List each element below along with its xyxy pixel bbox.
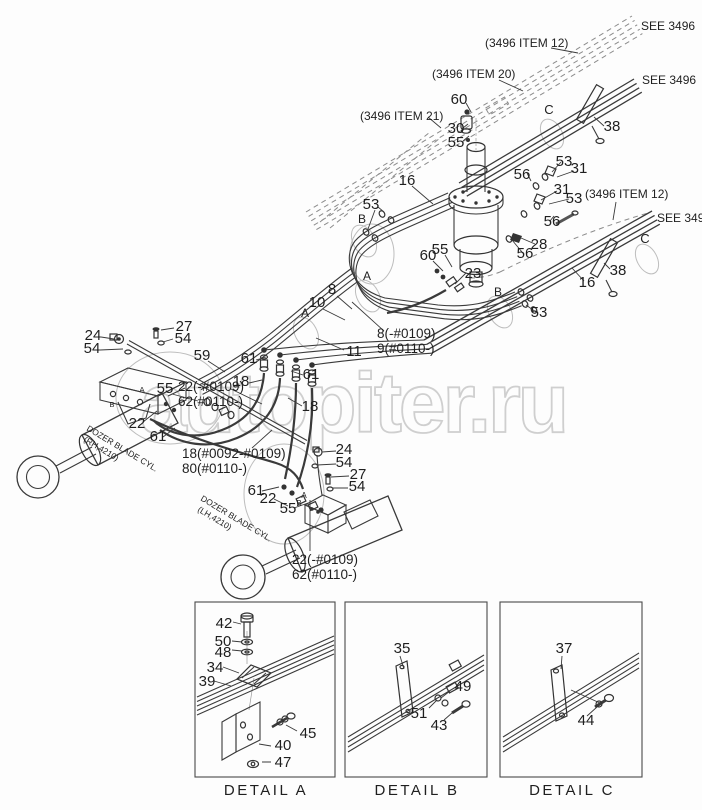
part-label-flow-b-1: B [358, 212, 366, 226]
part-label-60-top: 60 [451, 91, 468, 108]
part-label-22-variant-left: 22(-#0109) [178, 379, 244, 394]
part-label-61-b: 61 [150, 428, 167, 445]
part-label-flow-c-2: C [640, 231, 649, 246]
part-label-38-top: 38 [604, 118, 621, 135]
part-label-38-mid: 38 [610, 262, 627, 279]
part-label-56-a: 56 [514, 166, 531, 183]
part-label-detail-b-caption: DETAIL B [374, 782, 459, 799]
part-label-28: 28 [531, 236, 548, 253]
detail-boxes [195, 602, 642, 777]
part-label-ref-3496-item12-top: (3496 ITEM 12) [485, 36, 568, 50]
part-label-port-a-bot: A [301, 491, 307, 500]
part-label-port-a-block: A [139, 385, 144, 394]
part-label-16-left: 16 [399, 172, 416, 189]
part-label-flow-c-1: C [544, 102, 553, 117]
part-label-18-variant: 18(#0092-#0109) [182, 446, 286, 461]
detail-c-box [500, 602, 642, 777]
part-label-35: 35 [394, 640, 411, 657]
part-label-61-c: 61 [303, 366, 320, 383]
part-label-23: 23 [465, 265, 482, 282]
part-label-9-variant: 9(#0110-) [377, 341, 435, 356]
part-label-see-3496-2: SEE 3496 [642, 73, 696, 87]
part-label-22-left: 22 [129, 415, 146, 432]
part-label-flow-b-2: B [494, 285, 502, 299]
parts-diagram-page: autopiter.ru [0, 0, 702, 810]
part-label-8: 8 [328, 281, 336, 298]
part-label-11: 11 [346, 343, 362, 360]
piping-diagram-canvas: autopiter.ru [0, 0, 702, 810]
part-label-port-b-bot: B [296, 499, 301, 508]
part-label-ref-3496-item20: (3496 ITEM 20) [432, 67, 515, 81]
part-label-54-left-2: 54 [175, 330, 192, 347]
part-label-ref-3496-item12-mid: (3496 ITEM 12) [585, 187, 668, 201]
part-label-45: 45 [300, 725, 317, 742]
part-label-22-bot: 22 [260, 490, 277, 507]
detail-b-art [348, 655, 484, 752]
part-label-53-b: 53 [566, 190, 583, 207]
part-label-ref-3496-item21: (3496 ITEM 21) [360, 109, 443, 123]
part-label-53-c: 53 [531, 304, 548, 321]
part-label-detail-a-caption: DETAIL A [224, 782, 308, 799]
part-label-62-variant-left: 62(#0110-) [178, 394, 243, 409]
part-label-31-a: 31 [571, 160, 588, 177]
part-label-40: 40 [275, 737, 292, 754]
part-label-detail-c-caption: DETAIL C [529, 782, 615, 799]
detail-c-art [503, 653, 639, 752]
part-label-42: 42 [216, 615, 233, 632]
part-label-44: 44 [578, 712, 595, 729]
part-label-18-b: 18 [302, 398, 319, 415]
part-label-54-left-1: 54 [84, 340, 101, 357]
part-label-10: 10 [309, 294, 326, 311]
part-label-16-right: 16 [579, 274, 596, 291]
part-label-flow-a-1: A [363, 269, 371, 283]
part-label-47: 47 [275, 754, 292, 771]
part-label-see-3496-1: SEE 3496 [641, 19, 695, 33]
part-label-62-variant-bot: 62(#0110-) [292, 567, 357, 582]
part-label-54-bot-2: 54 [349, 478, 366, 495]
part-label-55-top: 55 [448, 134, 465, 151]
part-label-39: 39 [199, 673, 216, 690]
part-label-51: 51 [411, 705, 428, 722]
part-label-61-a: 61 [241, 350, 258, 367]
part-label-port-b-block: B [109, 400, 114, 409]
part-label-22-variant-bot: 22(-#0109) [292, 552, 358, 567]
part-label-53-left: 53 [363, 196, 380, 213]
dozer-cylinder-lh [221, 495, 402, 599]
part-label-see-3496-3: SEE 3496 [657, 211, 702, 225]
part-label-80-variant: 80(#0110-) [182, 461, 247, 476]
part-label-59: 59 [194, 347, 211, 364]
part-label-56-b: 56 [544, 213, 561, 230]
part-label-8-variant: 8(-#0109) [377, 326, 436, 341]
part-label-43: 43 [431, 717, 448, 734]
part-label-37: 37 [556, 640, 573, 657]
part-label-55-bot: 55 [280, 500, 297, 517]
part-label-55-mid: 55 [432, 241, 449, 258]
part-label-49: 49 [455, 678, 472, 695]
part-label-55-left: 55 [157, 380, 174, 397]
